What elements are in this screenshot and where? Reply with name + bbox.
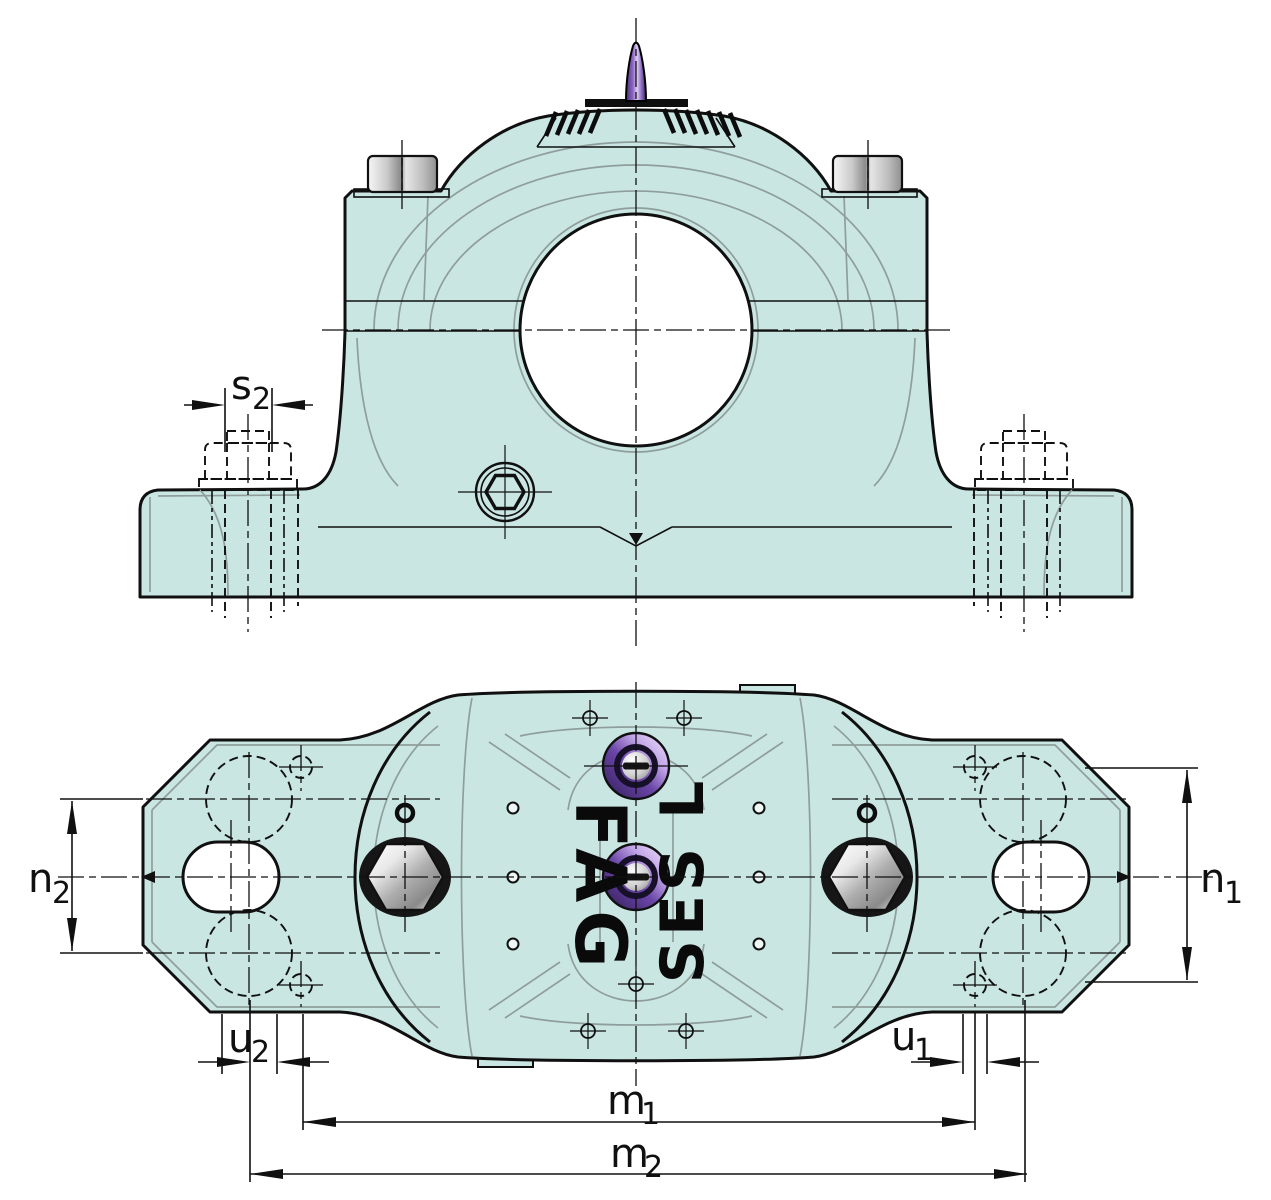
- svg-text:2: 2: [252, 382, 271, 417]
- front-elevation-view: [140, 18, 1132, 650]
- svg-text:2: 2: [251, 1035, 270, 1070]
- svg-text:1: 1: [641, 1097, 660, 1132]
- fag-logo: FAG: [559, 800, 641, 975]
- u2-label: u: [228, 1016, 253, 1062]
- dimension-u1: u 1: [891, 1014, 1039, 1068]
- svg-text:1: 1: [914, 1033, 933, 1068]
- s2-label: s: [231, 363, 252, 409]
- drawing-page: FAG SES L s 2: [0, 0, 1271, 1200]
- svg-text:2: 2: [644, 1150, 663, 1185]
- n2-label: n: [28, 856, 53, 902]
- u1-label: u: [891, 1014, 916, 1060]
- series-marking: SES L: [648, 777, 718, 984]
- dimension-u2: u 2: [198, 1016, 329, 1070]
- svg-text:2: 2: [52, 876, 71, 911]
- dimension-n2: n 2: [28, 799, 143, 953]
- svg-text:1: 1: [1224, 876, 1243, 911]
- technical-drawing: FAG SES L s 2: [0, 0, 1271, 1200]
- n1-label: n: [1200, 856, 1225, 902]
- dimension-m2: m 2: [250, 1131, 1027, 1185]
- dimension-m1: m 1: [303, 1078, 975, 1132]
